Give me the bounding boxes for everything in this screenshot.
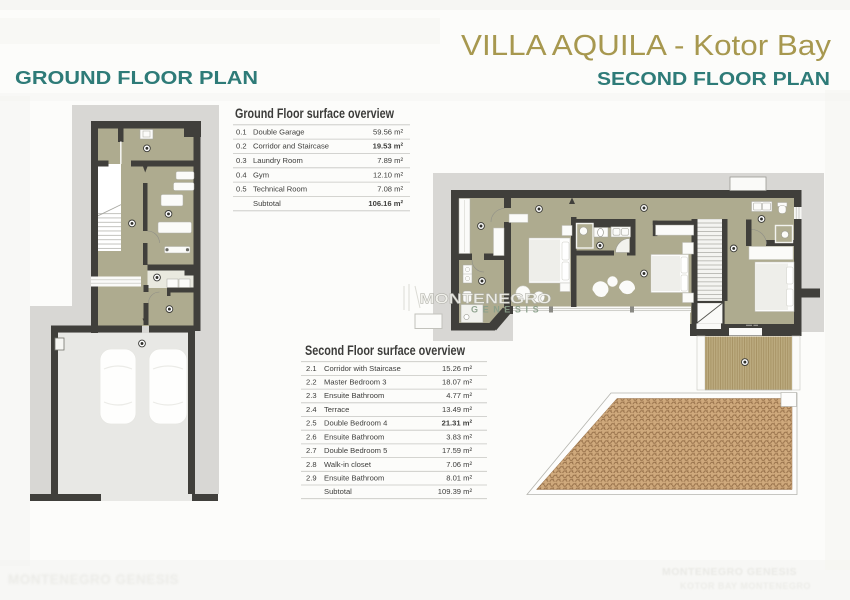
svg-text:0.5: 0.5 <box>236 185 247 194</box>
svg-text:Corridor with Staircase: Corridor with Staircase <box>324 364 401 373</box>
svg-text:Double Garage: Double Garage <box>253 127 305 136</box>
svg-text:0.2: 0.2 <box>236 142 247 151</box>
svg-text:Double Bedroom 4: Double Bedroom 4 <box>324 419 387 428</box>
svg-text:2.5: 2.5 <box>306 419 317 428</box>
svg-text:Ensuite Bathroom: Ensuite Bathroom <box>324 432 384 441</box>
svg-text:Gym: Gym <box>253 170 269 179</box>
svg-text:15.26 m²: 15.26 m² <box>442 364 472 373</box>
svg-text:3.83 m²: 3.83 m² <box>446 432 472 441</box>
svg-text:12.10 m²: 12.10 m² <box>373 170 403 179</box>
svg-text:MONTENEGRO GENESIS: MONTENEGRO GENESIS <box>8 572 179 587</box>
svg-text:Terrace: Terrace <box>324 405 349 414</box>
svg-text:2.9: 2.9 <box>306 473 317 482</box>
svg-text:13.49 m²: 13.49 m² <box>442 405 472 414</box>
svg-text:Ground Floor surface overview: Ground Floor surface overview <box>235 106 394 121</box>
svg-text:2.4: 2.4 <box>306 405 317 414</box>
svg-text:21.31 m²: 21.31 m² <box>442 419 473 428</box>
svg-text:Corridor and Staircase: Corridor and Staircase <box>253 142 329 151</box>
svg-text:Second Floor surface overview: Second Floor surface overview <box>305 343 465 358</box>
svg-text:2.7: 2.7 <box>306 446 317 455</box>
svg-text:Subtotal: Subtotal <box>253 199 281 208</box>
svg-text:17.59 m²: 17.59 m² <box>442 446 472 455</box>
svg-text:Subtotal: Subtotal <box>324 487 352 496</box>
svg-text:18.07 m²: 18.07 m² <box>442 378 472 387</box>
svg-text:Laundry Room: Laundry Room <box>253 156 303 165</box>
svg-text:2.8: 2.8 <box>306 460 317 469</box>
svg-text:Ensuite Bathroom: Ensuite Bathroom <box>324 391 384 400</box>
svg-text:7.08 m²: 7.08 m² <box>377 185 403 194</box>
svg-text:MONTENEGRO GENESIS: MONTENEGRO GENESIS <box>662 566 797 578</box>
svg-text:0.4: 0.4 <box>236 170 247 179</box>
svg-text:7.89 m²: 7.89 m² <box>377 156 403 165</box>
svg-text:GENESIS: GENESIS <box>471 305 543 315</box>
svg-text:7.06 m²: 7.06 m² <box>446 460 472 469</box>
svg-text:SECOND FLOOR PLAN: SECOND FLOOR PLAN <box>597 69 830 89</box>
svg-text:VILLA AQUILA - Kotor Bay: VILLA AQUILA - Kotor Bay <box>461 30 832 62</box>
svg-text:4.77 m²: 4.77 m² <box>446 391 472 400</box>
svg-text:KOTOR BAY MONTENEGRO: KOTOR BAY MONTENEGRO <box>680 581 811 591</box>
svg-text:0.3: 0.3 <box>236 156 247 165</box>
svg-text:2.6: 2.6 <box>306 432 317 441</box>
svg-text:59.56 m²: 59.56 m² <box>373 127 403 136</box>
svg-text:Double Bedroom 5: Double Bedroom 5 <box>324 446 387 455</box>
svg-text:GROUND FLOOR PLAN: GROUND FLOOR PLAN <box>15 67 258 88</box>
svg-text:19.53 m²: 19.53 m² <box>373 142 404 151</box>
svg-text:Ensuite Bathroom: Ensuite Bathroom <box>324 473 384 482</box>
svg-text:Walk-in closet: Walk-in closet <box>324 460 372 469</box>
svg-text:8.01 m²: 8.01 m² <box>446 473 472 482</box>
svg-text:2.1: 2.1 <box>306 364 317 373</box>
svg-text:0.1: 0.1 <box>236 127 247 136</box>
svg-text:2.3: 2.3 <box>306 391 317 400</box>
svg-text:106.16 m²: 106.16 m² <box>368 199 403 208</box>
svg-text:2.2: 2.2 <box>306 378 317 387</box>
svg-text:Technical Room: Technical Room <box>253 185 307 194</box>
svg-text:Master Bedroom 3: Master Bedroom 3 <box>324 378 386 387</box>
svg-text:109.39 m²: 109.39 m² <box>438 487 473 496</box>
